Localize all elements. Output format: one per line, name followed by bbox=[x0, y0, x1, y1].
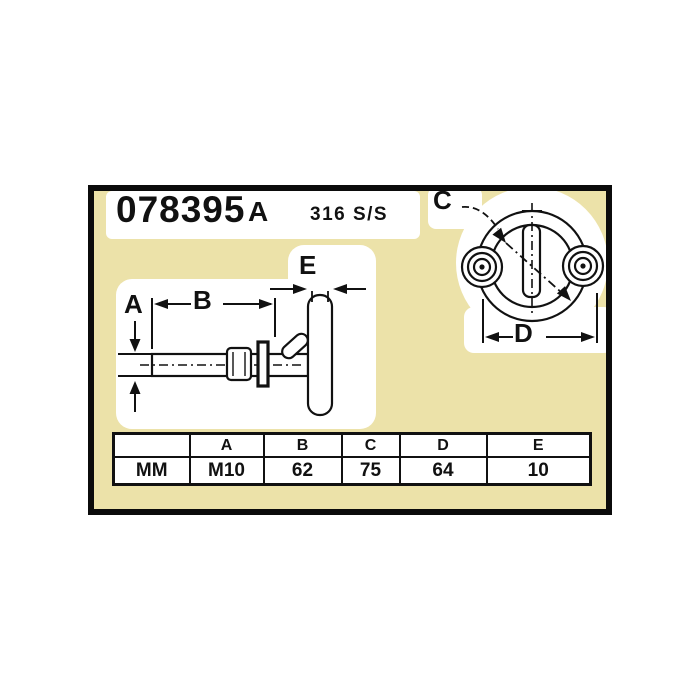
spec-col-header-c: C bbox=[342, 434, 400, 458]
spec-value-e: 10 bbox=[487, 457, 591, 485]
dimension-label-c: C bbox=[433, 187, 452, 213]
material-spec: 316 S/S bbox=[310, 205, 388, 224]
dimension-label-d: D bbox=[514, 320, 533, 346]
spec-table-value-row: MM M10 62 75 64 10 bbox=[114, 457, 591, 485]
spec-value-d: 64 bbox=[400, 457, 487, 485]
page: { "header": { "part_number": "078395", "… bbox=[0, 0, 700, 700]
spec-col-header-a: A bbox=[190, 434, 264, 458]
spec-table-header-row: A B C D E bbox=[114, 434, 591, 458]
spec-col-header-e: E bbox=[487, 434, 591, 458]
spec-unit-label: MM bbox=[114, 457, 190, 485]
spec-table-wrapper: A B C D E MM M10 62 75 64 10 bbox=[112, 432, 592, 486]
spec-table: A B C D E MM M10 62 75 64 10 bbox=[112, 432, 592, 486]
part-number: 078395 bbox=[116, 191, 245, 228]
spec-value-c: 75 bbox=[342, 457, 400, 485]
product-diagram-panel: 078395 A 316 S/S A B E C D A B C D E MM … bbox=[88, 185, 612, 515]
dimension-label-a: A bbox=[124, 291, 143, 317]
spec-value-a: M10 bbox=[190, 457, 264, 485]
spec-col-header-unit bbox=[114, 434, 190, 458]
part-variant: A bbox=[248, 198, 268, 226]
dimension-label-b: B bbox=[193, 287, 212, 313]
spec-col-header-d: D bbox=[400, 434, 487, 458]
spec-value-b: 62 bbox=[264, 457, 342, 485]
dimension-label-e: E bbox=[299, 252, 316, 278]
spec-col-header-b: B bbox=[264, 434, 342, 458]
